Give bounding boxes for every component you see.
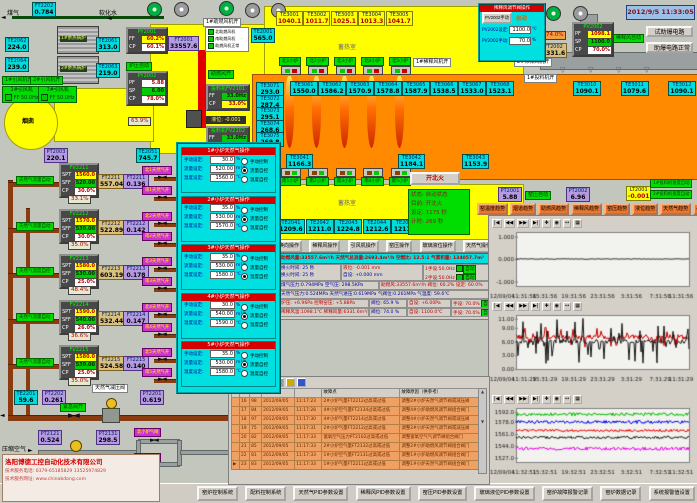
waist-temp-meter: TE30121090.1 — [668, 81, 696, 96]
chart3-toolbar: |◀◀◀▶▶▶|✚◉↔▦ — [492, 395, 582, 404]
valve-icon[interactable]: ►◄ — [158, 311, 165, 318]
nav-button[interactable]: 窑炉故障报警记录 — [542, 486, 594, 501]
burner-indicator — [308, 66, 328, 75]
crown-temp-meter: TE30041013.3 — [358, 11, 385, 26]
chart-tool-icon[interactable]: ✚ — [542, 302, 550, 311]
fan-icon — [546, 6, 561, 21]
fan-icon — [573, 6, 588, 21]
gas-mode-label: 天然气流量自动 — [16, 176, 54, 185]
pt2002-meter: PT20026.96 — [566, 187, 590, 202]
gas-mode-label: 天然气流量自动 — [16, 313, 54, 322]
chart-tool-icon[interactable]: ↔ — [563, 302, 571, 311]
chart-tool-icon[interactable]: |◀ — [492, 395, 502, 404]
gas-control-group: 天然气流量自动 FV2215 SPT1580.0 SFF530.00 CP25.… — [2, 345, 180, 391]
melt-temp-meter: TE30611550.0 — [290, 81, 318, 96]
kiln-pressure-trend-chart — [490, 312, 694, 384]
id-fan2-speed[interactable]: 2#引风机 FF 50.0Hz — [38, 86, 77, 103]
gas-flow-meter: FT2211557.04 — [98, 174, 124, 189]
burner-gas-panel: 2#小炉天然气操作 手动设定: 35.0 % 流量设定: 530.00 m³/h… — [181, 196, 276, 242]
melt-temp-meter: TE30661538.5 — [430, 81, 458, 96]
burner-indicator — [281, 168, 301, 177]
gas-flow-meter: FT2212522.89 — [98, 220, 124, 235]
burner-indicator — [336, 66, 356, 75]
company-phone: 技术服务电话: 0379-65185829 13525974829 — [5, 468, 157, 476]
waist-temp-meter: TE30101090.1 — [573, 81, 601, 96]
gas-mode-label: 天然气流量自动 — [16, 358, 54, 367]
manual-setting-field[interactable]: 35.0 — [210, 350, 235, 358]
burner-gas-panel: 3#小炉天然气操作 手动设定: 35.0 % 流量设定: 530.00 m³/h… — [181, 244, 276, 290]
gas-mode-label: 天然气温度自控 — [16, 267, 54, 276]
chart-tool-icon[interactable]: ◉ — [553, 302, 561, 311]
valve-position: 35.0% — [68, 241, 91, 250]
control-mode-radios: 手动控制 流量自控 温度自控 — [241, 303, 273, 330]
melt-temp-meter: TE30651587.9 — [402, 81, 430, 96]
manual-setting-field[interactable]: 30.0 — [210, 156, 235, 164]
fan-icon — [219, 1, 234, 16]
nav-button[interactable]: 玻璃液位PID参数设置 — [474, 486, 534, 501]
py2002-controller[interactable]: PY2002 PF5.88 SP6.00 CP78.0% — [126, 71, 168, 106]
chart-tool-icon[interactable]: |◀ — [492, 219, 502, 228]
flow-setting-field[interactable]: 530.00 — [210, 262, 235, 270]
nav-button[interactable]: 天然气PID参数设置 — [293, 486, 348, 501]
pv2002-setpoint-field[interactable]: 1100.0 — [509, 26, 531, 34]
control-mode-radios: 手动控制 流量自控 温度自控 — [241, 254, 273, 281]
gas-flow-controller[interactable]: FV2213 SPT1580.0 SFF530.00 CP25.0% — [59, 254, 99, 289]
flow-setting-field[interactable]: 540.00 — [210, 310, 235, 318]
glass-level-readout: 液位: -0.001 — [206, 116, 246, 124]
test-circuit-button[interactable]: 试助爆电路 — [646, 26, 693, 37]
flow-arrow-icon: ◄ — [1, 14, 6, 21]
chart-tool-icon[interactable]: ◉ — [553, 395, 561, 404]
alarm-scrollbar[interactable]: ▲▼ — [478, 388, 487, 474]
gas-flow-controller[interactable]: FV2215 SPT1580.0 SFF530.00 CP25.0% — [59, 345, 99, 380]
fan-icon — [147, 2, 162, 17]
ft2202-meter: FT22020.784 — [32, 2, 56, 17]
control-mode-radios: 手动控制 流量自控 温度自控 — [241, 157, 273, 184]
legend-item: 助燃风机正常 — [208, 43, 239, 49]
south-top-temp-meter: TE30411166.3 — [286, 154, 313, 169]
north-burner-label: 北5小炉 — [389, 57, 411, 66]
kiln-pressure-readout: 炉压: +6.96Pa 控制窑压: +5.88Pa — [279, 299, 369, 308]
gas-flow-meter: FT2215524.58 — [98, 356, 124, 371]
reducer-icon — [102, 408, 120, 423]
chart-tool-icon[interactable]: ▶▶ — [517, 302, 529, 311]
valve-position: 36.6% — [68, 332, 91, 341]
feeder1-auto-label: 1#投料机速度自动 — [650, 179, 692, 188]
pv2002-manual-button[interactable]: PV2002手动 — [482, 12, 512, 24]
south-top-temp-meter: TE30421184.1 — [398, 154, 425, 169]
valve-icon[interactable]: ►◄ — [158, 376, 165, 383]
duct-funnel-icon: ▽ — [588, 66, 593, 74]
trend-button[interactable]: 助燃风趋势 — [538, 203, 569, 215]
chimney-label: 烟囱 — [22, 116, 34, 125]
compressed-air-label: 压缩空气 — [2, 444, 26, 453]
flow-arrow-icon: ◄ — [0, 412, 5, 419]
crown-temp-meter: TE30051041.7 — [386, 11, 413, 26]
py2001-controller[interactable]: PY2001 FF60.2% CP60.1% — [126, 27, 168, 54]
temp-setting-field[interactable]: 1560.0 — [210, 174, 235, 182]
chart-tool-icon[interactable]: ▶| — [531, 302, 541, 311]
level-readouts: 液位: -0.001 mm自设: +0.000 mm — [341, 264, 423, 281]
blower-legend: 北助燃风机 南助燃风机 助燃风机正常 — [205, 27, 249, 52]
pv2002-controller[interactable]: PV2002 PF1098.1 SP1100.0 CP70.0% — [572, 22, 614, 57]
gas-mode-label: 天然气流量自动 — [16, 222, 54, 231]
radio-manual-control[interactable]: 手动控制 — [241, 206, 273, 215]
radio-temp-control[interactable]: 温度自控 — [241, 224, 273, 233]
waist-temp-meter: TE30111079.6 — [621, 81, 649, 96]
trend-button[interactable]: 窑压趋势 — [604, 203, 630, 215]
id-fan2-status: 2#引风机开 — [30, 76, 63, 85]
valve-icon[interactable]: ►◄ — [158, 356, 165, 363]
air-gas-summary: 助燃风量:33557.6m³/h 天然气总流量:2693.4m³/h 空燃比: … — [279, 253, 496, 264]
north-air-valve-label: 北小炉气阀 — [134, 428, 161, 437]
south-burner-label: 南1小炉 — [279, 177, 301, 186]
north-burner-label: 北3小炉 — [334, 57, 356, 66]
trend-button[interactable]: 窑温度趋势 — [477, 203, 508, 215]
radio-manual-control[interactable]: 手动控制 — [241, 303, 273, 312]
chart-tool-icon[interactable]: ◉ — [553, 219, 561, 228]
blower1-status: 1#助燃风机开 — [203, 18, 241, 27]
valve-icon[interactable]: ►◄ — [158, 194, 165, 201]
alarm-save-icon[interactable] — [286, 378, 295, 387]
radio-manual-control[interactable]: 手动控制 — [241, 157, 273, 166]
popup-title: 稀释风调节阀操作 — [480, 5, 544, 12]
burner-gas-panel: 5#小炉天然气操作 手动设定: 35.0 % 流量设定: 530.00 m³/h… — [181, 341, 276, 387]
south-regen-temp-meter: TE20421211.0 — [306, 219, 334, 234]
alarm-help-icon[interactable] — [297, 378, 306, 387]
chart-tool-icon[interactable]: |◀ — [492, 302, 502, 311]
manual-setting-field[interactable]: 35.0 — [210, 204, 235, 212]
chart-tool-icon[interactable]: ▶| — [531, 395, 541, 404]
pt2201-meter: PT22010.619 — [140, 390, 164, 405]
damper-position: 63.9% — [128, 117, 151, 126]
chart1-toolbar: |◀◀◀▶▶▶|✚◉↔▦ — [492, 219, 582, 228]
te2051-meter: TE2051745.7 — [136, 148, 160, 163]
pressure-reducer-label: 天然气减压阀 — [92, 384, 128, 393]
burner-indicator — [363, 168, 383, 177]
id-fan1-speed[interactable]: 1#引风机 FF 50.0Hz — [2, 86, 41, 103]
regenerator-label-south: 蓄热室 — [338, 198, 356, 207]
radio-temp-control[interactable]: 温度自控 — [241, 175, 273, 184]
valve-icon[interactable]: ►◄ — [158, 331, 165, 338]
burner-indicator — [363, 66, 383, 75]
pt2131-meter: PT2131298.5 — [96, 430, 120, 445]
nav-button[interactable]: 窑炉控制系统 — [197, 486, 238, 501]
level-trend-chart — [490, 229, 694, 301]
radio-flow-control[interactable]: 流量自控 — [241, 263, 273, 272]
valve-icon[interactable]: ►◄ — [150, 437, 157, 444]
flow-setting-field[interactable]: 520.00 — [210, 165, 235, 173]
trend-button[interactable]: 烟道趋势 — [510, 203, 536, 215]
radio-temp-control[interactable]: 温度自控 — [241, 321, 273, 330]
duct-funnel-icon: ▽ — [616, 66, 621, 74]
lt2001-meter: LT2001-0.001 — [626, 186, 651, 201]
south-regen-temp-meter: TE20411209.6 — [277, 219, 305, 234]
nav-button[interactable]: 窑炉数据记录 — [600, 486, 641, 501]
melt-temp-meter: TE30671533.0 — [458, 81, 486, 96]
valve-position: 48.4% — [68, 286, 91, 295]
alarm-row[interactable]: 2082 2012/09/0511:17:33 富氧空气压力PT2102过高或过… — [232, 434, 479, 443]
chart-tool-icon[interactable]: ▦ — [573, 302, 582, 311]
valve-icon[interactable]: ►◄ — [158, 240, 165, 247]
south-burner-label: 南4小炉 — [361, 177, 383, 186]
alarm-row[interactable]: ▶2383 2012/09/0511:17:33 1#小炉气量FT2211过高或… — [232, 461, 479, 470]
burner-indicator — [391, 66, 411, 75]
valve-icon[interactable]: ►◄ — [158, 220, 165, 227]
alarm-row[interactable]: 2185 2012/09/0511:17:33 2#小炉空气量FT2132过高或… — [232, 443, 479, 452]
radio-flow-control[interactable]: 流量自控 — [241, 215, 273, 224]
alarm-row[interactable]: 2281 2012/09/0511:17:33 1#小炉空气量FT2131过高或… — [232, 452, 479, 461]
chart-tool-icon[interactable]: ▶▶ — [517, 395, 529, 404]
panel-title: 4#小炉天然气操作 — [182, 294, 275, 301]
chart2-toolbar: |◀◀◀▶▶▶|✚◉↔▦ — [492, 302, 582, 311]
fan-hand-settings: 1手设:50.0Hz 自动 2手设:50.0Hz 自动 — [423, 264, 496, 281]
chart-tool-icon[interactable]: ↔ — [563, 219, 571, 228]
temp-setting-field[interactable]: 1590.0 — [210, 319, 235, 327]
company-info-box: 洛阳博德工控自动化技术有限公司 技术服务电话: 0379-65185829 13… — [2, 454, 160, 502]
burner-indicator — [336, 168, 356, 177]
nav-button[interactable]: 窑压PID参数设置 — [418, 486, 468, 501]
gas-flow-controller[interactable]: FV2214 SPT1590.0 SFF540.00 CP26.0% — [59, 300, 99, 335]
chart-tool-icon[interactable]: ◀◀ — [504, 302, 516, 311]
south-regen-temp-meter: TE20431224.8 — [334, 219, 362, 234]
radio-manual-control[interactable]: 手动控制 — [241, 254, 273, 263]
nav-button[interactable]: 系统报警值设置 — [649, 486, 695, 501]
trend-button[interactable]: 液位趋势 — [632, 203, 658, 215]
gas-flow-meter: FT2214532.44 — [98, 311, 124, 326]
feeder2-auto-label: 2#投料机速度自动 — [650, 190, 692, 199]
trend-button[interactable]: 小炉气趋势 — [693, 203, 697, 215]
chart-tool-icon[interactable]: ▶▶ — [517, 219, 529, 228]
combustion-air-status: 助燃风开 — [208, 70, 234, 79]
pt2001-meter: PT20015.88 — [498, 187, 522, 202]
manual-setting-field[interactable]: 30.0 — [210, 301, 235, 309]
fan-icon — [245, 3, 260, 18]
legend-item: 南助燃风机 — [208, 36, 235, 42]
navigation-buttons: 窑炉控制系统 配料控制系统 天然气PID参数设置 稀释风PID参数设置 窑压PI… — [197, 486, 695, 501]
gas-flow-controller[interactable]: FV2211 SPT1560.0 SFF520.00 CP30.0% — [59, 163, 99, 198]
furnace-pressure-auto-label: 炉压自动 — [126, 62, 152, 71]
radio-manual-control[interactable]: 手动控制 — [241, 351, 273, 360]
trend-button[interactable]: 天然气趋势 — [660, 203, 691, 215]
south-top-temp-meter: TE30431153.9 — [462, 154, 489, 169]
temperature-trend-chart — [490, 405, 694, 477]
feeder1-controller[interactable]: 投料机FV2101 FF33.0Hz CP33.0% — [206, 84, 250, 111]
duct-funnel-icon: ▽ — [560, 66, 565, 74]
feeder1-open-status: 1#投料机开 — [524, 74, 557, 83]
south-regen-temp-meter: TE20441212.6 — [363, 219, 391, 234]
radio-flow-control[interactable]: 流量自控 — [241, 312, 273, 321]
te2064-meter: TE2064239.0 — [5, 57, 29, 72]
melt-temp-meter: TE30681523.1 — [486, 81, 514, 96]
temp-setting-field[interactable]: 1580.0 — [210, 368, 235, 376]
chart-tool-icon[interactable]: ◀◀ — [504, 219, 516, 228]
valve-icon[interactable]: ►◄ — [158, 285, 165, 292]
chart-tool-icon[interactable]: ◀◀ — [504, 395, 516, 404]
company-web: 技术服务网址: www.chinabdong.com — [5, 476, 157, 484]
te2001-meter: TE2001565.0 — [251, 28, 275, 43]
flow-setting-field[interactable]: 530.00 — [210, 213, 235, 221]
valve-position: 35.0% — [68, 377, 91, 386]
process-info-panel: 助燃风量:33557.6m³/h 天然气总流量:2693.4m³/h 空燃比: … — [278, 252, 497, 320]
te2063-meter: TE2063219.0 — [96, 63, 120, 78]
alarm-row[interactable]: 1897 2012/09/0511:17:30 4#小炉气量FT2214过高或过… — [232, 416, 479, 425]
pt2003-meter: PT2003220.1 — [44, 148, 68, 163]
panel-title: 3#小炉天然气操作 — [182, 245, 275, 252]
combustion-air-readout: 助燃风:33557.6m³/h 阀位: 60.2% 设定: 60.0% — [379, 281, 496, 290]
te2061-meter: TE2061313.0 — [96, 37, 120, 52]
natural-gas-pressures: 天然气压力:0.524MPa 天然气进压:0.619MPa 气阀位:0.261M… — [279, 290, 496, 299]
panel-title: 2#小炉天然气操作 — [182, 197, 275, 204]
manual-setting-field[interactable]: 35.0 — [210, 253, 235, 261]
south-burner-label: 南3小炉 — [334, 177, 356, 186]
alarm-row[interactable]: 1698 2012/09/0511:17:23 2#小炉气量FT2212过高或过… — [232, 398, 479, 407]
ft2001-meter: FT200133557.6 — [168, 36, 199, 51]
flow-arrow-icon: ◄ — [107, 15, 112, 22]
circuit-ok-button[interactable]: 助爆电路正常 — [646, 42, 693, 53]
radio-flow-control[interactable]: 流量自控 — [241, 360, 273, 369]
burner-gas-popup: 1#小炉天然气操作 手动设定: 30.0 % 流量设定: 520.00 m³/h… — [176, 142, 281, 394]
gas-control-group: 天然气流量自动 FV2211 SPT1560.0 SFF520.00 CP30.… — [2, 163, 180, 209]
control-mode-radios: 手动控制 流量自控 温度自控 — [241, 351, 273, 378]
gas-control-group: 天然气温度自控 FV2213 SPT1580.0 SFF530.00 CP25.… — [2, 254, 180, 300]
duct-funnel-icon: ▽ — [644, 66, 649, 74]
dilution-fan1-status: 1#稀释风机开 — [413, 58, 451, 67]
burner-indicator — [308, 168, 328, 177]
valve-icon[interactable]: ►◄ — [158, 265, 165, 272]
fire-north-button[interactable]: 开北火 — [410, 172, 460, 185]
melt-temp-meter: TE30641578.8 — [374, 81, 402, 96]
control-mode-radios: 手动控制 流量自控 温度自控 — [241, 206, 273, 233]
north-burner-label: 北4小炉 — [361, 57, 383, 66]
pt2121-meter: PT21210.524 — [38, 430, 62, 445]
company-name: 洛阳博德工控自动化技术有限公司 — [5, 456, 157, 468]
melt-temp-meter: TE30631570.9 — [346, 81, 374, 96]
chart-tool-icon[interactable]: ▦ — [573, 395, 582, 404]
gas-flow-controller[interactable]: FV2212 SPT1570.0 SFF530.00 CP30.0% — [59, 209, 99, 244]
temp-setting-field[interactable]: 1570.0 — [210, 222, 235, 230]
air-valve-actuator-icon[interactable] — [70, 440, 82, 452]
temp-setting-field[interactable]: 1580.0 — [210, 271, 235, 279]
coal-gas-label: 煤气 — [7, 8, 19, 17]
north-burner-label: 北1小炉 — [279, 57, 301, 66]
nav-button[interactable]: 配料控制系统 — [245, 486, 286, 501]
burner-indicator — [281, 66, 301, 75]
fan-icon — [174, 2, 189, 17]
trend-buttons: 窑温度趋势 烟道趋势 助燃风趋势 稀释风趋势 窑压趋势 液位趋势 天然气趋势 小… — [477, 203, 696, 215]
valve-position: 33.1% — [68, 195, 91, 204]
radio-temp-control[interactable]: 温度自控 — [241, 369, 273, 378]
flow-arrow-icon: ► — [28, 447, 33, 454]
chart-tool-icon[interactable]: ↔ — [563, 395, 571, 404]
alarm-table: 故障点 故障原因（供参考） 1698 2012/09/0511:17:23 2#… — [231, 388, 479, 470]
radio-temp-control[interactable]: 温度自控 — [241, 272, 273, 281]
burner-gas-panel: 1#小炉天然气操作 手动设定: 30.0 % 流量设定: 520.00 m³/h… — [181, 147, 276, 193]
kiln-pressure-auto-label: 窑压自动 — [525, 191, 551, 200]
gas-flow-meter: FT2213603.19 — [98, 265, 124, 280]
pv2002-manual-field[interactable]: 70.0 — [509, 37, 531, 45]
reversal-status-box: 状态: 自动状态 目前: 开北火 设定: 1175 秒 计时: 269 秒 — [408, 189, 470, 235]
crown-temp-meter: TE30031025.1 — [331, 11, 358, 26]
dilution-auto-label: 稀释风自动 — [613, 34, 644, 43]
north-burner-label: 北2小炉 — [306, 57, 328, 66]
hmi-screen: 烟囱 ▽ ▽ ▽ ▽ 煤气 ◄ FT22020.784 软化水 ◄ 1#余热锅炉… — [0, 0, 697, 503]
alarm-row[interactable]: 1784 2012/09/0511:17:28 4#小炉空气量FT2134过高或… — [232, 407, 479, 416]
gas-control-group: 天然气流量自动 FV2214 SPT1590.0 SFF540.00 CP26.… — [2, 300, 180, 346]
te2062-meter: TE2062224.0 — [5, 37, 29, 52]
dilution-valve-popup: 稀释风调节阀操作 PV2002手动 自动 PV2002设定: 1100.0 ℃ … — [478, 3, 546, 62]
burner-indicator — [391, 168, 411, 177]
gas-air-pressures: 煤气压力:0.794MPa 空气压: 298.5KPa — [279, 281, 379, 290]
flow-setting-field[interactable]: 530.00 — [210, 359, 235, 367]
chart-tool-icon[interactable]: ✚ — [542, 219, 550, 228]
panel-title: 1#小炉天然气操作 — [182, 148, 275, 155]
gas-control-group: 天然气流量自动 FV2212 SPT1570.0 SFF530.00 CP30.… — [2, 209, 180, 255]
legend-item: 北助燃风机 — [208, 29, 235, 35]
panel-title: 5#小炉天然气操作 — [182, 342, 275, 349]
dilution-valve-position: 74.0% — [543, 31, 566, 40]
burner-gas-panel: 4#小炉天然气操作 手动设定: 30.0 % 流量设定: 540.00 m³/h… — [181, 293, 276, 339]
valve-icon[interactable]: ►◄ — [68, 413, 78, 420]
chart-tool-icon[interactable]: ✚ — [542, 395, 550, 404]
melt-temp-meter: TE30621586.2 — [318, 81, 346, 96]
dilution-air-readout: 稀释风温:1098.1℃ 稀释风量:6331.6m³/h — [279, 308, 369, 317]
reversal-times: 换火时间: 25 秒换火时间: 25 秒 — [279, 264, 341, 281]
trend-button[interactable]: 稀释风趋势 — [571, 203, 602, 215]
crown-temp-meter: TE30021011.7 — [303, 11, 330, 26]
crown-temp-meter: TE30011040.1 — [276, 11, 303, 26]
south-burner-label: 南2小炉 — [306, 177, 328, 186]
pv2002-mode: 自动 — [516, 14, 527, 22]
motor-icon — [186, 110, 202, 128]
waste-heat-boiler-1: 1#余热锅炉 — [57, 26, 99, 54]
actuator-icon — [106, 398, 117, 409]
datetime-box: 2012/9/5 11:33:05 — [626, 5, 695, 20]
radio-flow-control[interactable]: 流量自控 — [241, 166, 273, 175]
te2201-meter: TE220159.6 — [14, 390, 38, 405]
alarm-row[interactable]: 1975 2012/09/0511:17:31 2#小炉气量FT2212过高或过… — [232, 425, 479, 434]
south-burner-label: 南5小炉 — [389, 177, 411, 186]
chart-tool-icon[interactable]: ▶| — [531, 219, 541, 228]
chart-tool-icon[interactable]: ▦ — [573, 219, 582, 228]
nav-button[interactable]: 稀释风PID参数设置 — [356, 486, 411, 501]
valve-icon[interactable]: ►◄ — [158, 174, 165, 181]
regenerator-label: 蓄热室 — [338, 42, 356, 51]
